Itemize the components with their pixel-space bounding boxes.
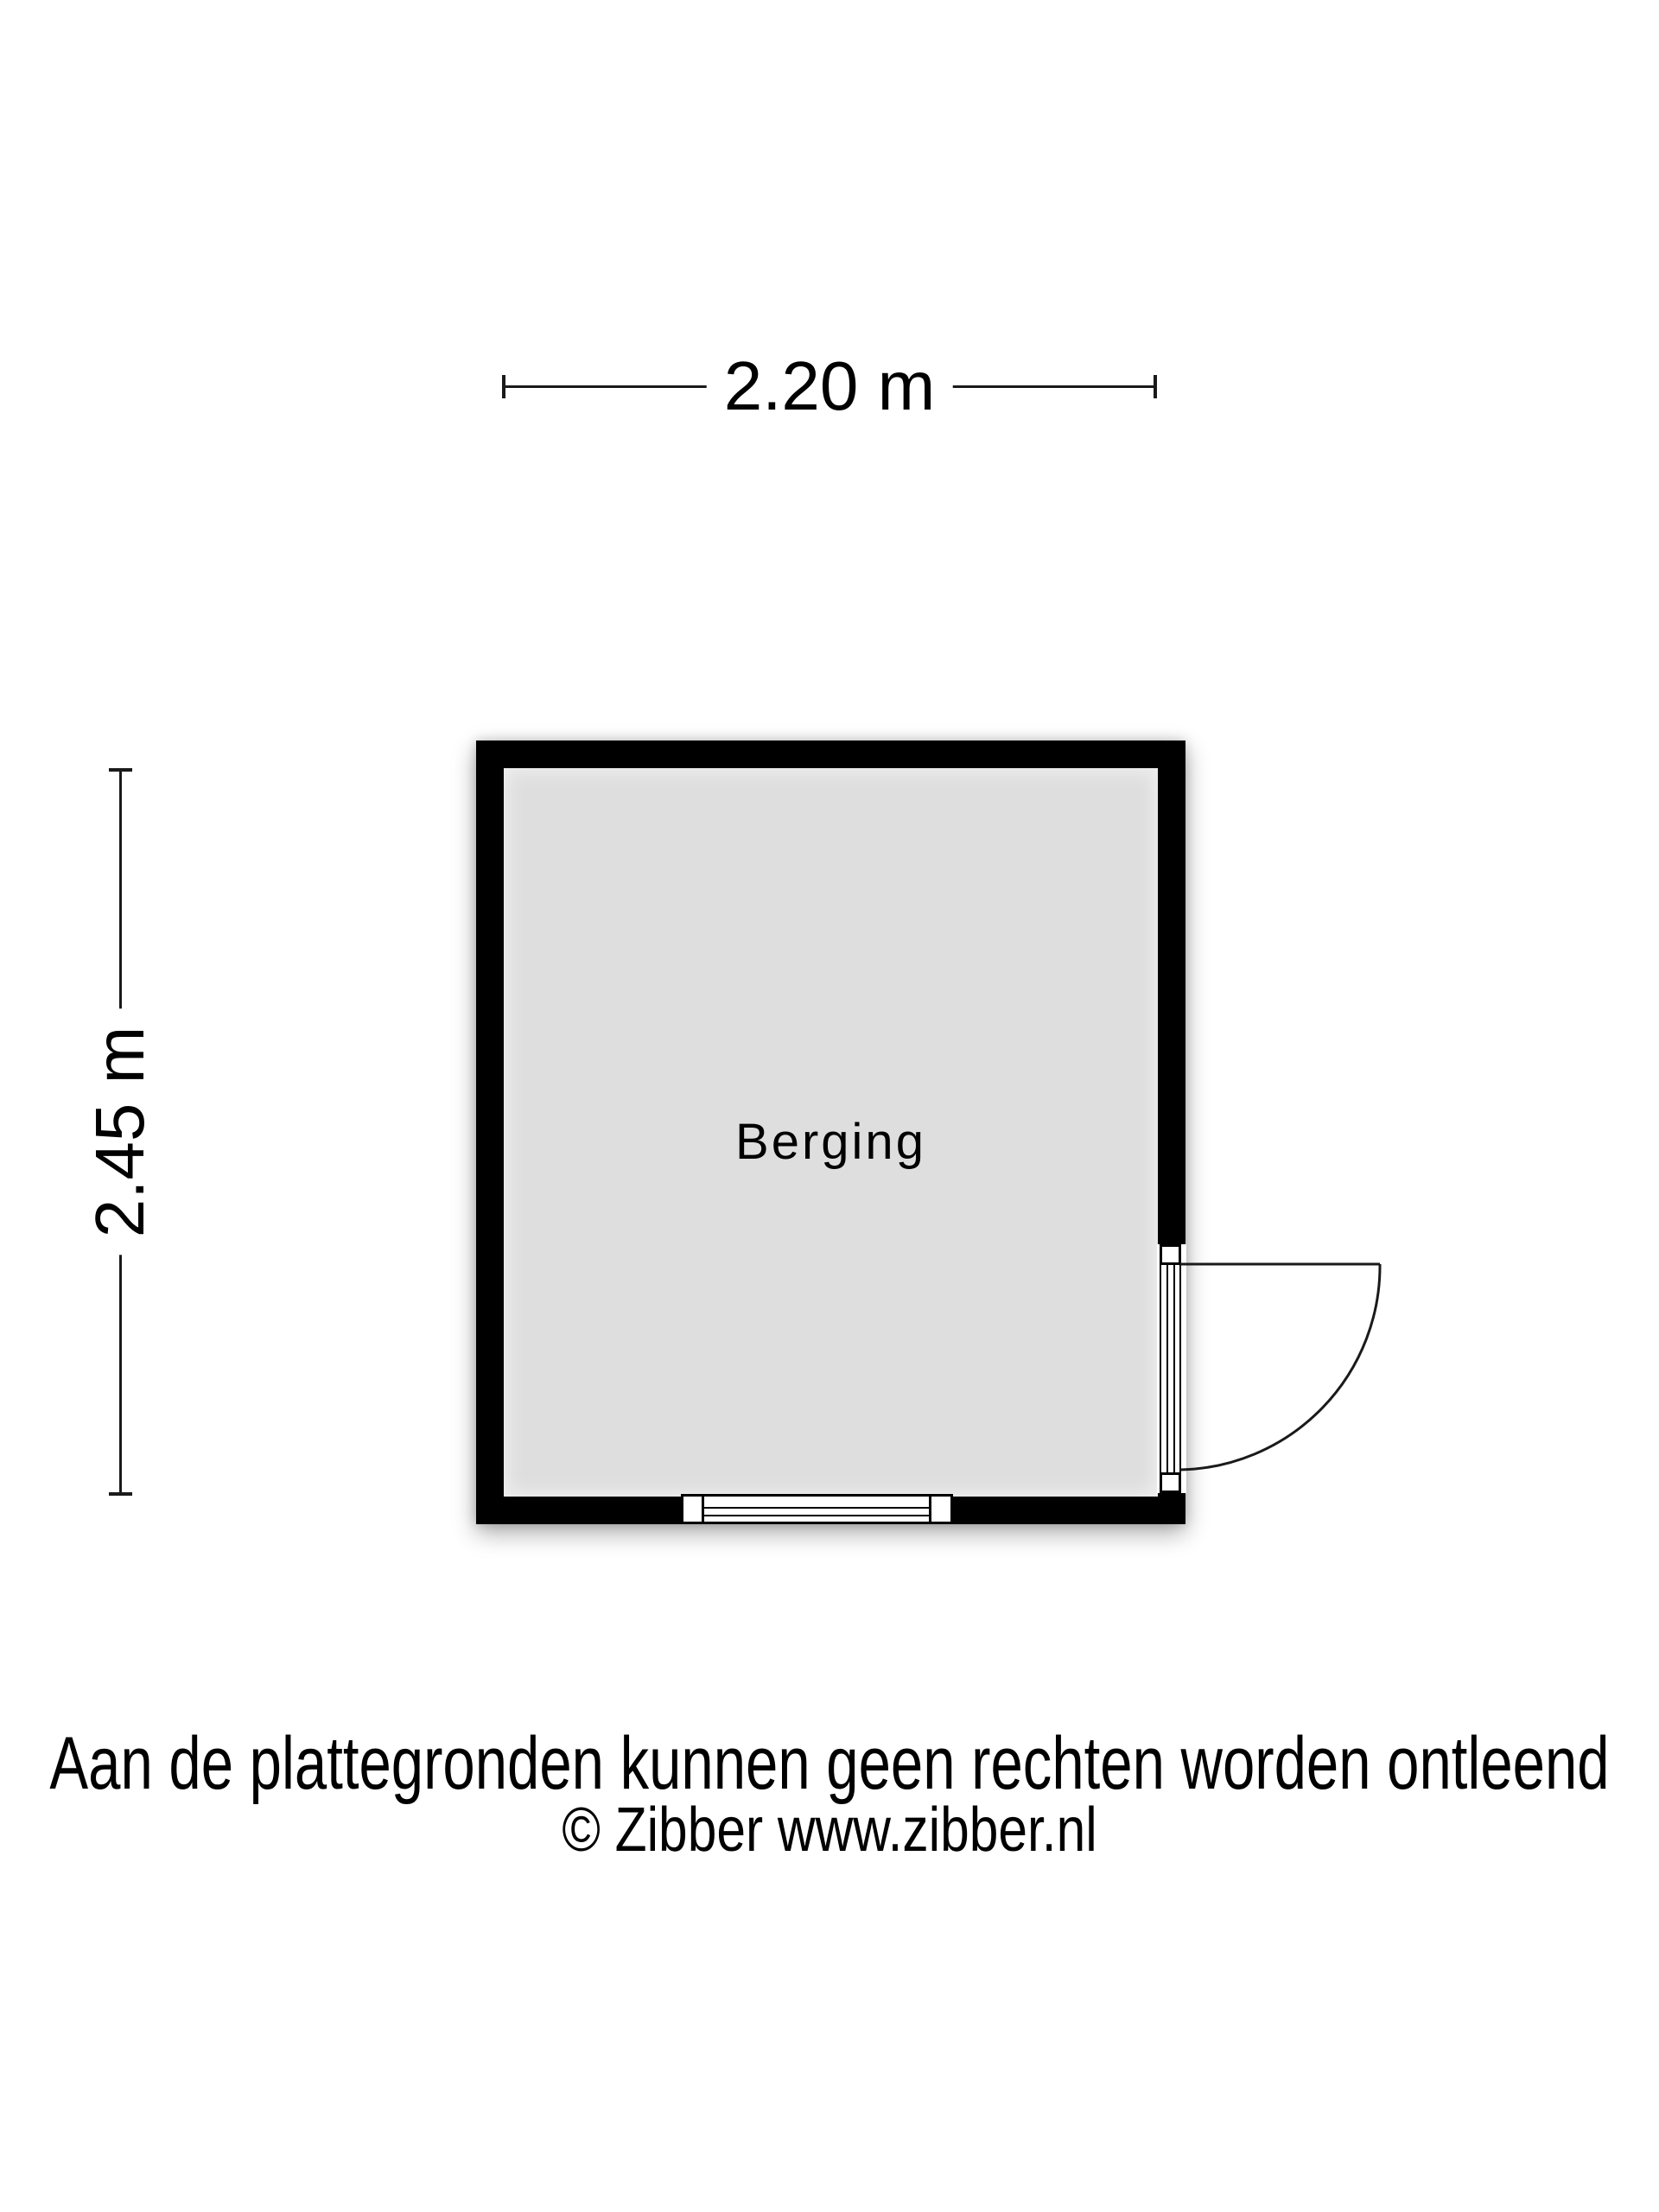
height-dimension-tick-top xyxy=(109,768,132,772)
door-panel xyxy=(1160,1263,1181,1474)
door-panel-line xyxy=(1173,1265,1176,1472)
window-jamb-right xyxy=(929,1497,931,1522)
door-swing-arc xyxy=(1180,1264,1380,1470)
window xyxy=(681,1494,953,1524)
width-dimension-tick-left xyxy=(502,375,505,398)
width-dimension-tick-right xyxy=(1154,375,1157,398)
height-dimension-label: 2.45 m xyxy=(86,1009,155,1255)
room-floor: Berging xyxy=(504,768,1158,1497)
door-panel-line xyxy=(1166,1265,1169,1472)
width-dimension-label: 2.20 m xyxy=(707,352,953,421)
height-dimension-tick-bottom xyxy=(109,1492,132,1496)
window-glazing-line xyxy=(704,1507,929,1510)
footer-disclaimer-text: Aan de plattegronden kunnen geen rechten… xyxy=(49,1726,1609,1801)
floorplan-canvas: 2.20 m 2.45 m Berging Aan de plattegrond… xyxy=(0,0,1659,2212)
door-jamb-top xyxy=(1160,1244,1181,1265)
room-label: Berging xyxy=(735,1117,926,1167)
door-jamb-bottom xyxy=(1160,1472,1181,1493)
window-jamb-left xyxy=(702,1497,704,1522)
footer-copyright-text: © Zibber www.zibber.nl xyxy=(562,1799,1096,1861)
window-glazing-line xyxy=(704,1515,929,1517)
